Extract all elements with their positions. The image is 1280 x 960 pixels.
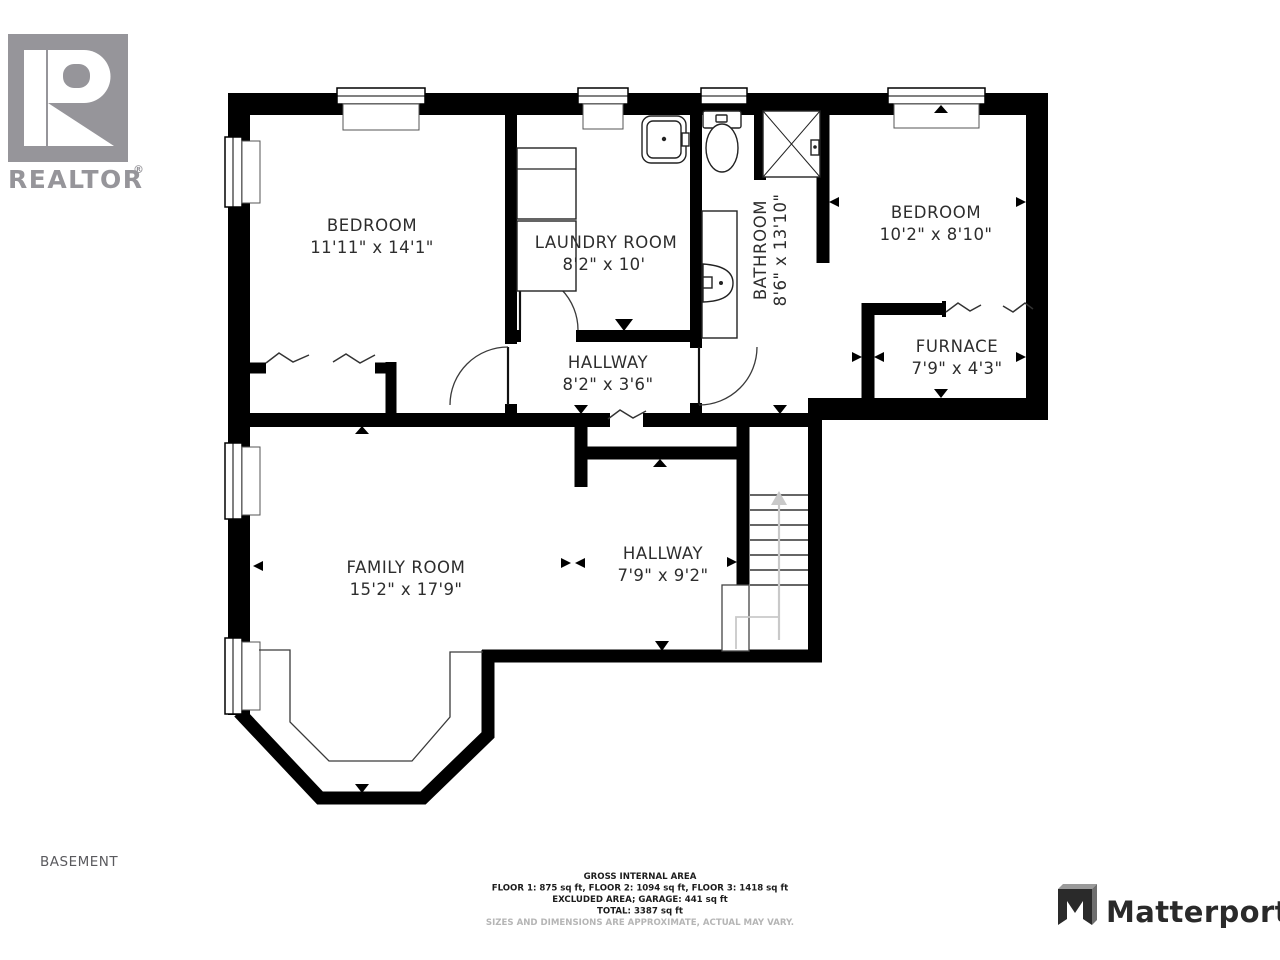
room-name: LAUNDRY ROOM xyxy=(535,233,678,252)
door-arc xyxy=(450,347,508,405)
room-dims: 7'9" x 4'3" xyxy=(912,359,1003,378)
matterport-logo-text: Matterport xyxy=(1106,895,1280,929)
floor-areas-line: FLOOR 1: 875 sq ft, FLOOR 2: 1094 sq ft,… xyxy=(492,884,789,894)
wall-break-icon xyxy=(946,303,981,312)
room-name: BEDROOM xyxy=(327,216,417,235)
gross-internal-area-title: GROSS INTERNAL AREA xyxy=(584,872,697,882)
floor-level-label: BASEMENT xyxy=(40,854,118,870)
door-icon xyxy=(450,347,508,405)
room-name: HALLWAY xyxy=(568,353,649,372)
door-icon xyxy=(699,347,757,405)
excluded-area-line: EXCLUDED AREA; GARAGE: 441 sq ft xyxy=(552,895,728,905)
room-dims: 8'2" x 10' xyxy=(563,255,646,274)
window-icon xyxy=(225,638,260,714)
room-label-hallway-upper: HALLWAY 8'2" x 3'6" xyxy=(563,353,654,394)
door-arc xyxy=(699,347,757,405)
bay-window-inner-line xyxy=(259,650,483,761)
total-area-line: TOTAL: 3387 sq ft xyxy=(597,907,683,917)
window-icon xyxy=(578,88,628,129)
floor-plan-page: REALTOR ® xyxy=(0,0,1280,960)
room-dims: 8'6" x 13'10" xyxy=(771,194,790,307)
room-name: HALLWAY xyxy=(623,544,704,563)
registered-mark-icon: ® xyxy=(133,163,144,176)
room-dims: 8'2" x 3'6" xyxy=(563,375,654,394)
area-summary: GROSS INTERNAL AREA FLOOR 1: 875 sq ft, … xyxy=(486,872,794,928)
room-name: FURNACE xyxy=(916,337,999,356)
closet-walls xyxy=(242,362,391,420)
wall-break-icon xyxy=(333,354,375,363)
window-icon xyxy=(337,88,425,130)
vanity-sink-icon xyxy=(702,211,737,338)
room-label-hallway-lower: HALLWAY 7'9" x 9'2" xyxy=(618,544,709,585)
room-name: BEDROOM xyxy=(891,203,981,222)
room-dims: 7'9" x 9'2" xyxy=(618,566,709,585)
exterior-walls xyxy=(228,93,1048,798)
realtor-logo: REALTOR ® xyxy=(8,34,144,194)
matterport-m-icon xyxy=(1058,884,1097,925)
wall-break-icon xyxy=(608,410,646,419)
window-icon xyxy=(888,88,985,128)
wall-break-icon xyxy=(266,353,309,363)
room-dims: 11'11" x 14'1" xyxy=(310,238,434,257)
room-label-furnace: FURNACE 7'9" x 4'3" xyxy=(912,337,1003,378)
washer-icon xyxy=(517,148,576,219)
room-name: FAMILY ROOM xyxy=(347,558,466,577)
window-icon xyxy=(225,137,260,207)
toilet-icon xyxy=(703,111,741,172)
room-label-bedroom-left: BEDROOM 11'11" x 14'1" xyxy=(310,216,434,257)
room-dims: 10'2" x 8'10" xyxy=(880,225,993,244)
realtor-logo-text: REALTOR xyxy=(8,165,144,194)
room-name: BATHROOM xyxy=(751,200,770,300)
floor-plan-image: REALTOR ® xyxy=(0,0,1280,960)
interior-walls xyxy=(228,93,944,587)
window-icon xyxy=(701,88,747,104)
room-label-bathroom: BATHROOM 8'6" x 13'10" xyxy=(751,194,790,307)
matterport-logo: Matterport xyxy=(1058,884,1280,929)
room-dims: 15'2" x 17'9" xyxy=(350,580,463,599)
disclaimer-line: SIZES AND DIMENSIONS ARE APPROXIMATE, AC… xyxy=(486,918,794,928)
room-label-family-room: FAMILY ROOM 15'2" x 17'9" xyxy=(347,558,466,599)
window-icon xyxy=(225,443,260,519)
shower-icon xyxy=(763,111,820,177)
stairs-icon xyxy=(722,491,808,651)
laundry-sink-icon xyxy=(642,116,689,163)
room-label-bedroom-right: BEDROOM 10'2" x 8'10" xyxy=(880,203,993,244)
